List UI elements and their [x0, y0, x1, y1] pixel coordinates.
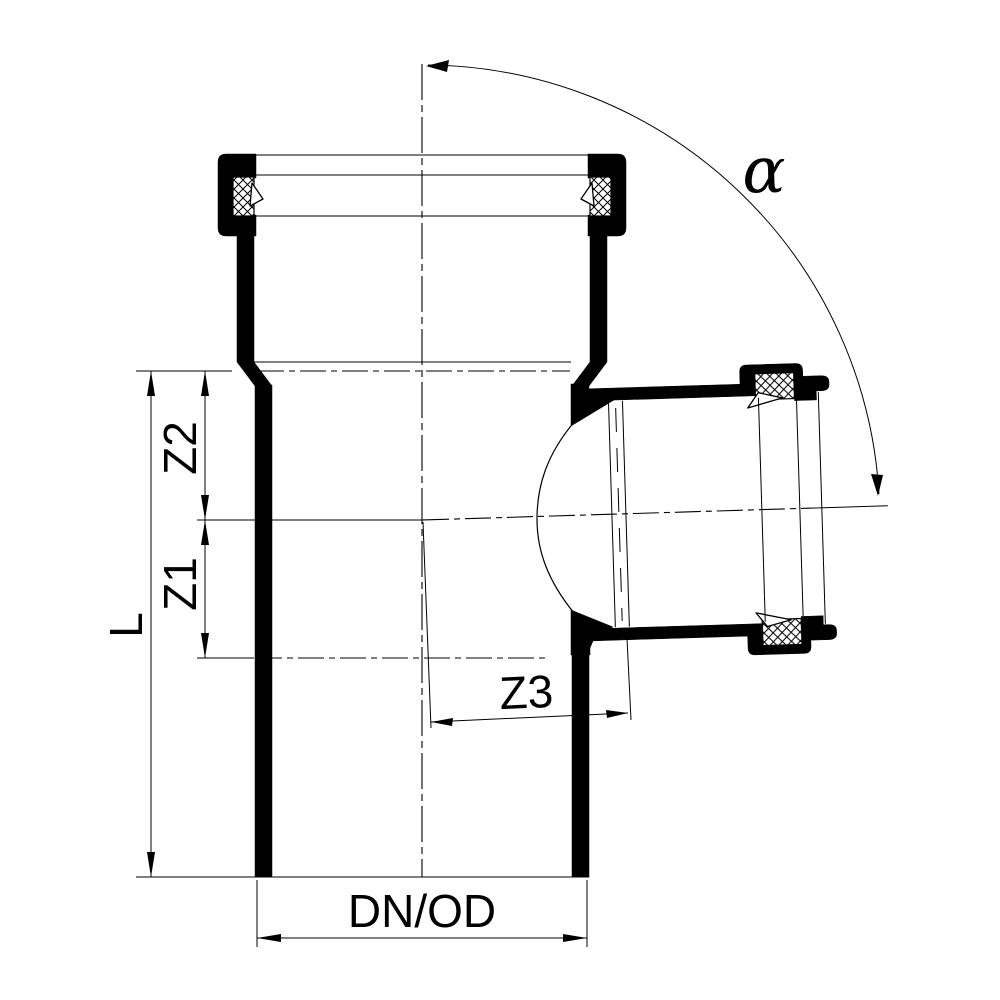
- z3-arrow-right: [606, 710, 628, 718]
- right-gasket-lip: [581, 183, 594, 206]
- z1-arrow-bottom: [201, 633, 209, 658]
- dimension-Z2: Z2: [154, 371, 209, 520]
- drawing-canvas: L Z2 Z1 Z3 DN/OD α: [0, 0, 1000, 1000]
- l-label: L: [100, 612, 152, 638]
- dnod-arrow-left: [257, 934, 281, 942]
- alpha-label: α: [742, 134, 785, 208]
- right-wall-transition: [572, 362, 607, 386]
- z2-arrow-bottom: [201, 495, 209, 520]
- angle-arrow-bottom: [871, 474, 883, 496]
- dimension-Z1: Z1: [154, 520, 423, 658]
- left-wall-transition: [237, 362, 272, 386]
- dnod-label: DN/OD: [348, 885, 496, 937]
- left-body-wall: [255, 385, 272, 877]
- dimension-angle-alpha: α: [426, 60, 883, 496]
- z2-arrow-top: [201, 371, 209, 396]
- pipe-fitting-drawing: L Z2 Z1 Z3 DN/OD α: [0, 0, 1000, 1000]
- branch-upper-wall: [578, 384, 740, 401]
- z1-label: Z1: [154, 557, 206, 611]
- branch-socket: [419, 361, 893, 665]
- z2-label: Z2: [154, 421, 206, 475]
- right-body-wall: [572, 645, 589, 877]
- z3-extension-left: [423, 522, 431, 728]
- right-socket-wall: [590, 236, 607, 362]
- branch-axis-centerline: [423, 508, 812, 520]
- angle-arc: [428, 65, 879, 494]
- z3-extension-right: [627, 638, 631, 720]
- dimension-DN-OD: DN/OD: [257, 880, 587, 947]
- branch-axis-extension: [812, 506, 888, 508]
- z3-arrow-left: [431, 718, 453, 726]
- dnod-arrow-right: [563, 934, 587, 942]
- l-arrow-bottom: [147, 852, 155, 877]
- branch-penetration-curve: [537, 421, 575, 613]
- z1-arrow-top: [201, 520, 209, 545]
- angle-arrow-top: [426, 60, 449, 72]
- l-arrow-top: [147, 371, 155, 396]
- left-socket-wall: [237, 236, 254, 362]
- z3-label: Z3: [498, 665, 554, 719]
- left-gasket-lip: [250, 183, 263, 206]
